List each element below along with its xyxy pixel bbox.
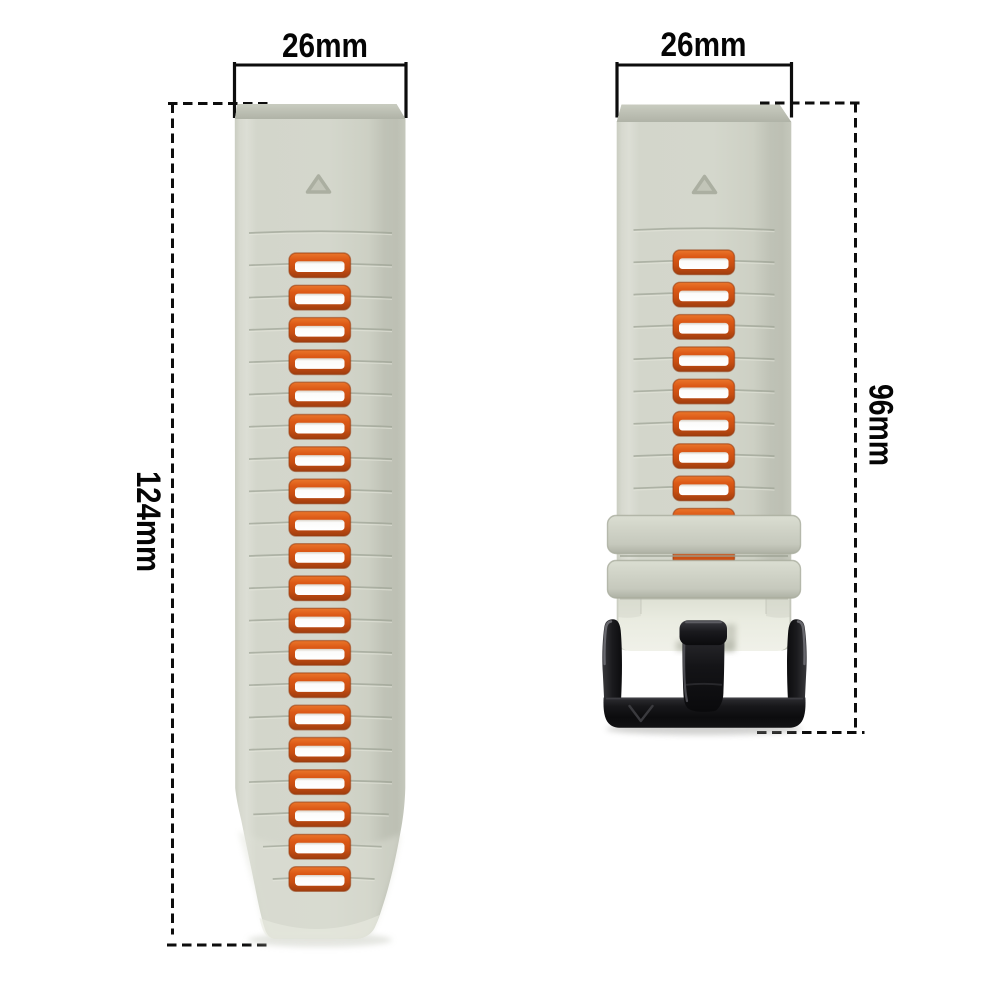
- svg-text:26mm: 26mm: [661, 26, 747, 64]
- svg-text:124mm: 124mm: [129, 471, 167, 572]
- svg-text:96mm: 96mm: [862, 384, 900, 466]
- svg-text:26mm: 26mm: [282, 27, 368, 65]
